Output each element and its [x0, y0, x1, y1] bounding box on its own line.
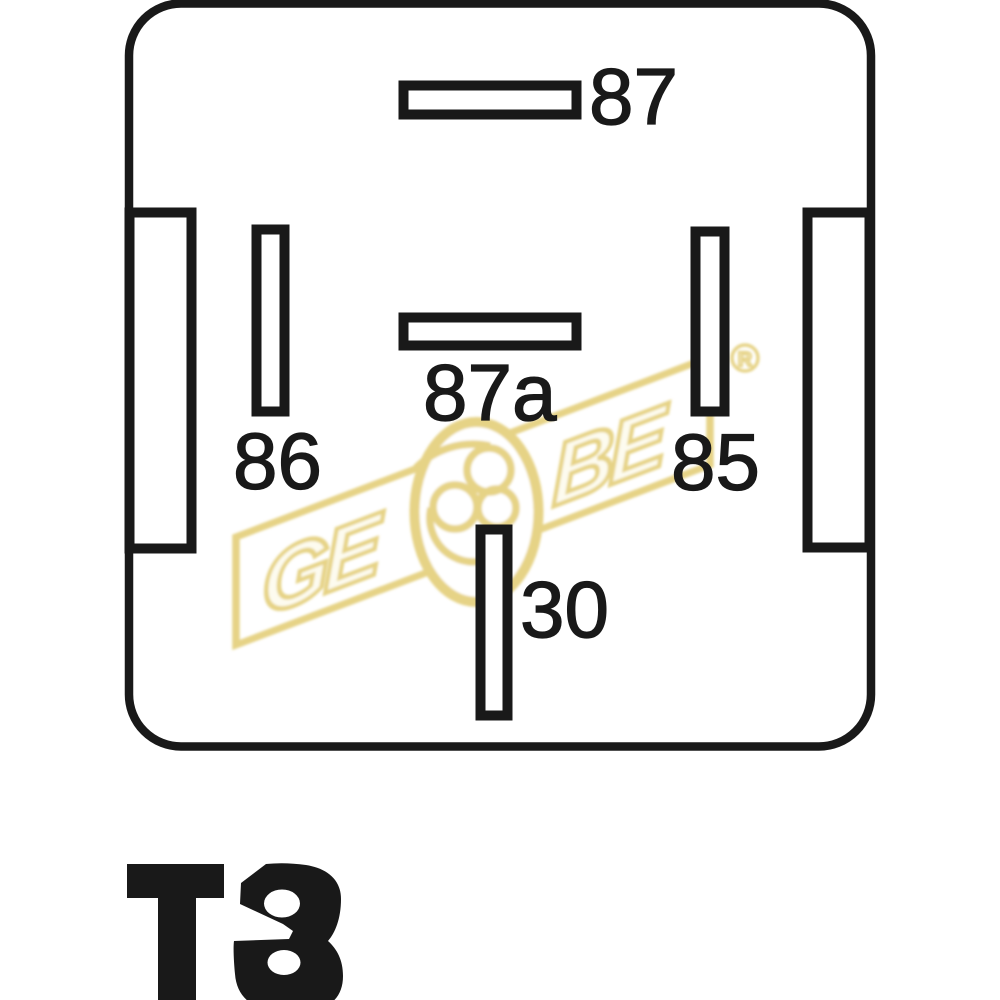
- svg-text:R: R: [738, 349, 753, 371]
- svg-text:87: 87: [589, 52, 678, 141]
- svg-text:86: 86: [233, 417, 322, 506]
- svg-text:30: 30: [520, 565, 609, 654]
- svg-text:85: 85: [671, 418, 760, 507]
- svg-text:87a: 87a: [423, 348, 557, 437]
